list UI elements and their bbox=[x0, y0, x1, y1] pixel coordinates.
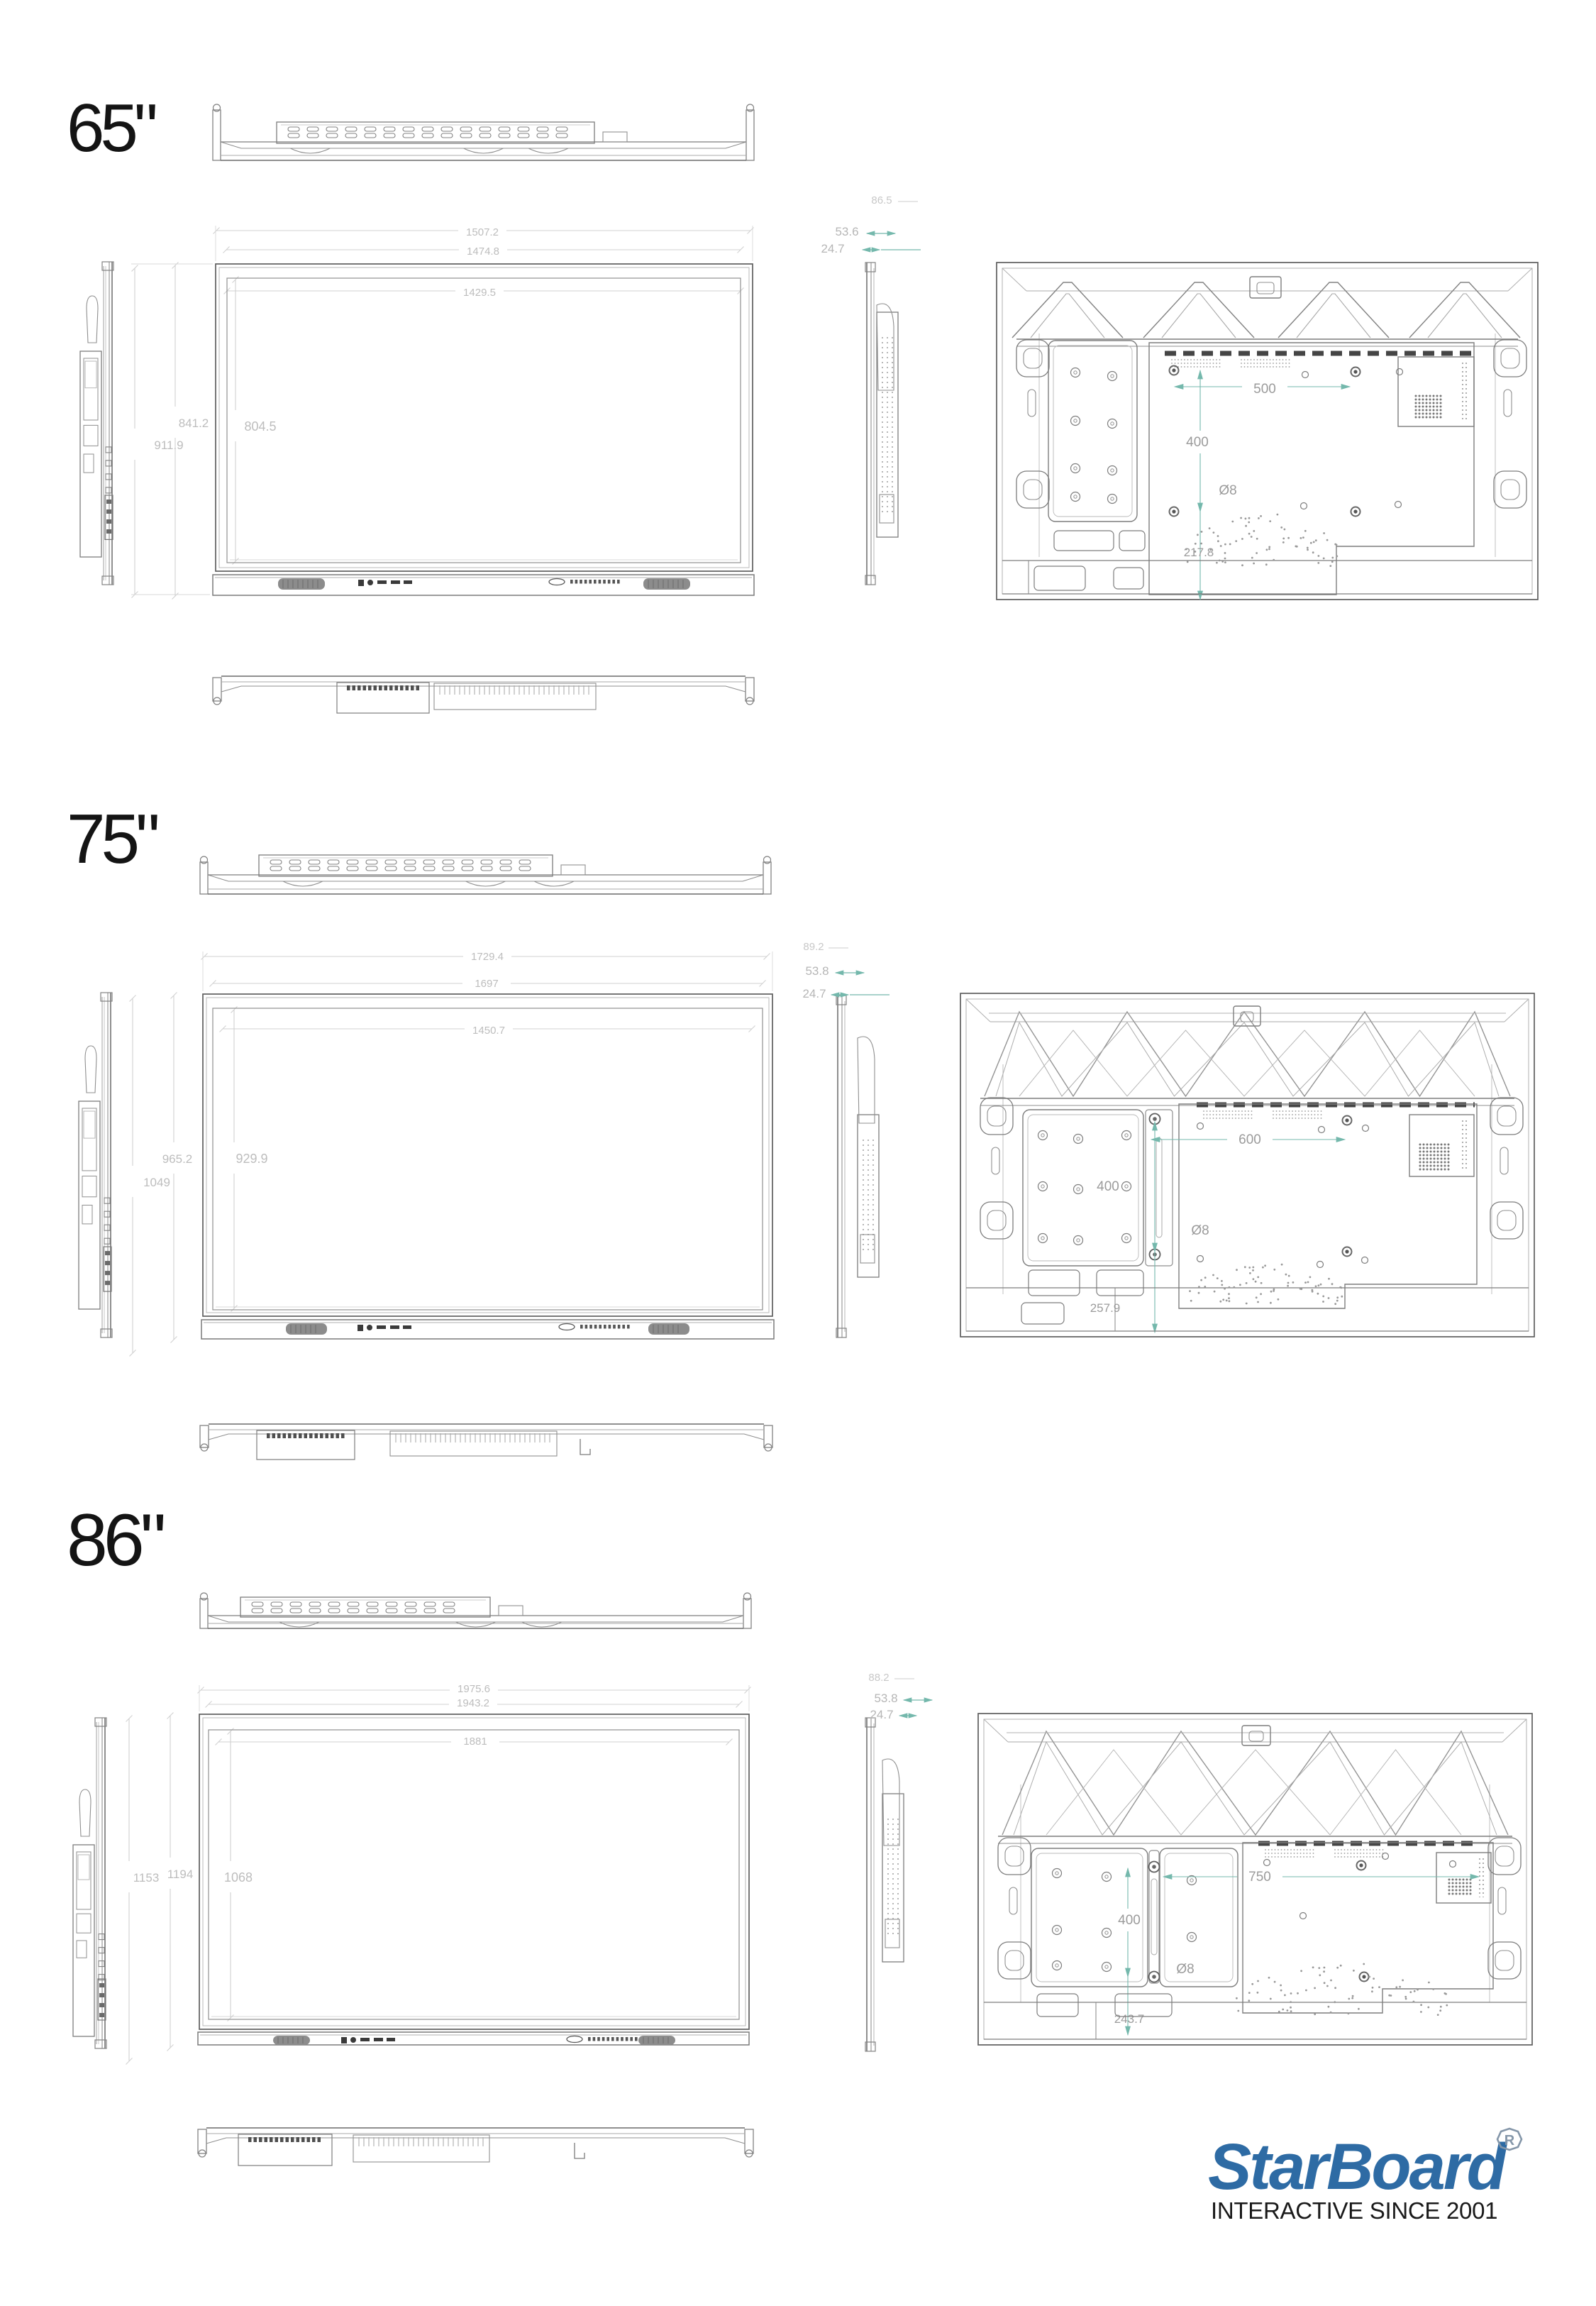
svg-text:400: 400 bbox=[1097, 1179, 1119, 1194]
svg-text:1049: 1049 bbox=[143, 1176, 170, 1189]
svg-text:400: 400 bbox=[1118, 1913, 1141, 1928]
svg-text:53.8: 53.8 bbox=[874, 1692, 897, 1705]
svg-text:53.8: 53.8 bbox=[805, 964, 829, 978]
svg-text:1881: 1881 bbox=[463, 1736, 487, 1748]
svg-text:841.2: 841.2 bbox=[179, 416, 209, 430]
svg-text:INTERACTIVE SINCE 2001: INTERACTIVE SINCE 2001 bbox=[1211, 2197, 1497, 2224]
svg-text:86": 86" bbox=[67, 1499, 164, 1582]
svg-text:Ø8: Ø8 bbox=[1219, 483, 1236, 498]
svg-text:86.5: 86.5 bbox=[871, 194, 892, 206]
svg-text:929.9: 929.9 bbox=[235, 1152, 267, 1166]
svg-text:911.9: 911.9 bbox=[154, 438, 183, 452]
svg-text:75": 75" bbox=[67, 800, 157, 878]
svg-text:804.5: 804.5 bbox=[244, 419, 276, 434]
svg-text:1729.4: 1729.4 bbox=[471, 951, 504, 963]
svg-text:88.2: 88.2 bbox=[868, 1672, 889, 1684]
svg-text:53.6: 53.6 bbox=[835, 225, 858, 238]
svg-text:1943.2: 1943.2 bbox=[457, 1697, 489, 1709]
svg-text:89.2: 89.2 bbox=[803, 941, 824, 953]
svg-text:Ø8: Ø8 bbox=[1176, 1962, 1194, 1977]
svg-text:1975.6: 1975.6 bbox=[458, 1683, 490, 1695]
svg-text:StarBoard: StarBoard bbox=[1208, 2131, 1508, 2203]
svg-text:1450.7: 1450.7 bbox=[472, 1025, 505, 1037]
svg-text:24.7: 24.7 bbox=[870, 1708, 893, 1721]
svg-text:24.7: 24.7 bbox=[821, 242, 844, 255]
svg-text:500: 500 bbox=[1253, 382, 1276, 397]
svg-text:R: R bbox=[1504, 2133, 1515, 2148]
svg-text:217.8: 217.8 bbox=[1184, 546, 1214, 559]
svg-text:243.7: 243.7 bbox=[1114, 2012, 1145, 2026]
svg-text:1697: 1697 bbox=[475, 978, 498, 990]
svg-text:1153: 1153 bbox=[133, 1871, 160, 1885]
svg-text:1068: 1068 bbox=[224, 1870, 253, 1885]
svg-text:65": 65" bbox=[67, 90, 155, 166]
svg-text:Ø8: Ø8 bbox=[1191, 1223, 1209, 1238]
svg-text:1507.2: 1507.2 bbox=[466, 226, 499, 238]
svg-text:750: 750 bbox=[1248, 1870, 1271, 1885]
svg-text:1194: 1194 bbox=[167, 1868, 194, 1881]
svg-text:24.7: 24.7 bbox=[802, 987, 826, 1000]
svg-text:965.2: 965.2 bbox=[162, 1152, 193, 1166]
svg-text:257.9: 257.9 bbox=[1090, 1301, 1121, 1315]
svg-text:1474.8: 1474.8 bbox=[467, 246, 499, 258]
svg-text:400: 400 bbox=[1186, 435, 1209, 450]
svg-text:600: 600 bbox=[1238, 1132, 1261, 1147]
svg-text:1429.5: 1429.5 bbox=[463, 287, 496, 299]
